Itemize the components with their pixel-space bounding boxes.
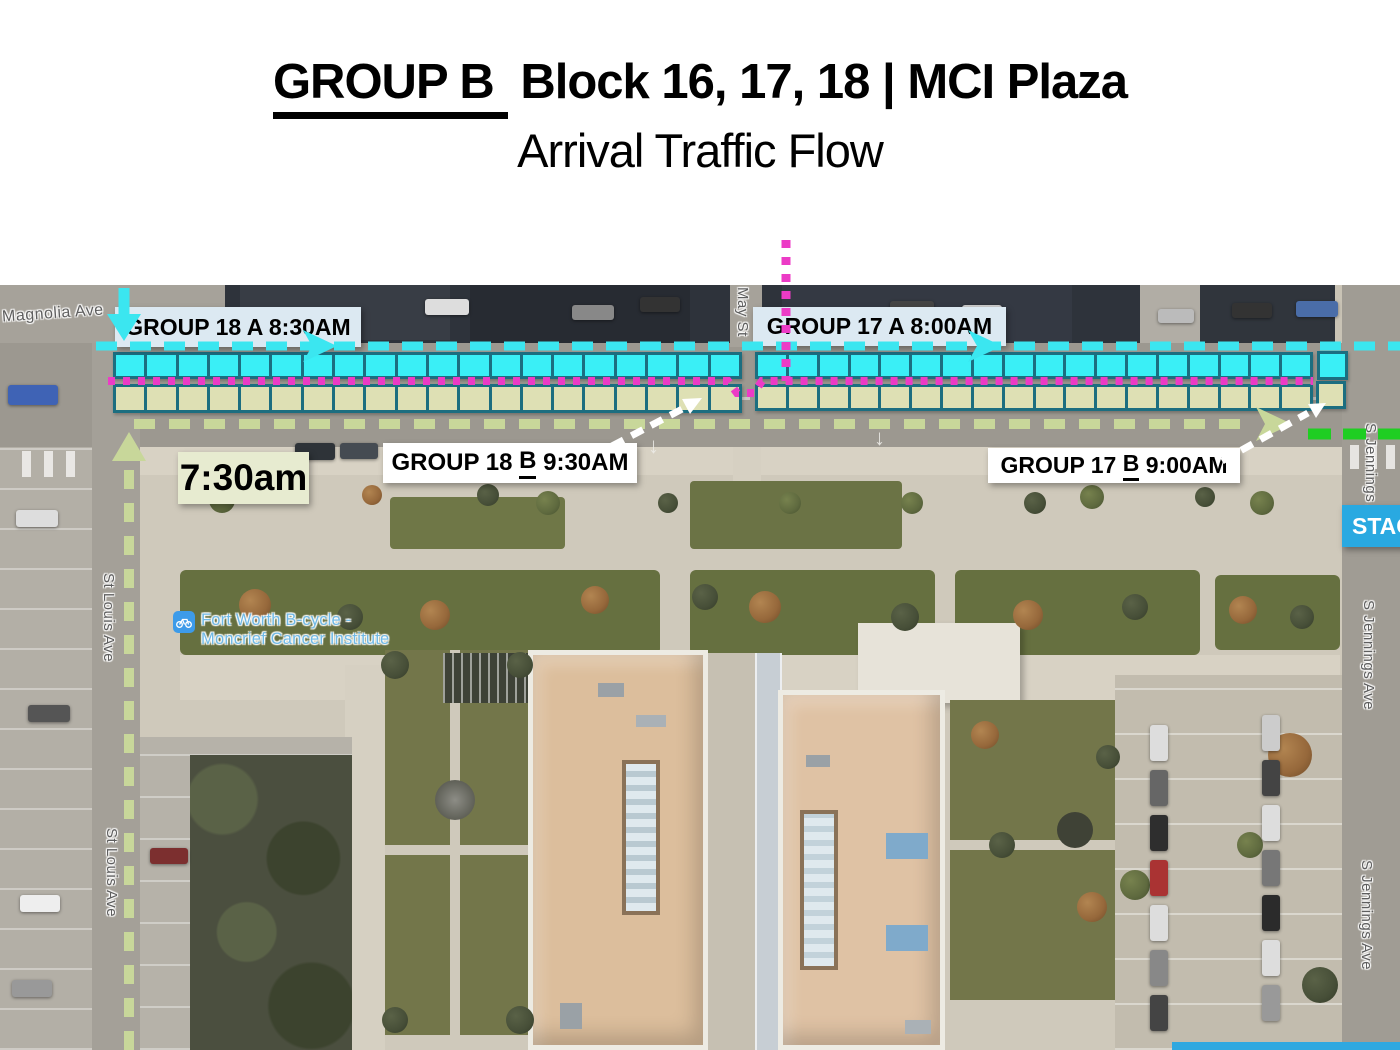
- car: [150, 848, 188, 864]
- staging-label: STAGING: [1352, 513, 1400, 540]
- parking-spot-beige: [366, 387, 394, 410]
- street-label-st-louis: St Louis Ave: [103, 828, 120, 917]
- tree: [1229, 596, 1257, 624]
- parking-spot-cyan: [366, 355, 394, 376]
- map-hvac: [806, 755, 830, 767]
- parking-spot-cyan: [1159, 355, 1187, 376]
- parking-spot-cyan: [648, 355, 676, 376]
- car: [1262, 985, 1280, 1021]
- tree: [1024, 492, 1046, 514]
- parking-spot-beige: [851, 387, 879, 408]
- map-garden-feature: [1057, 812, 1093, 848]
- slide: GROUP B Block 16, 17, 18 | MCI Plaza Arr…: [0, 0, 1400, 1050]
- car: [1232, 303, 1272, 318]
- parking-spot-beige: [1251, 387, 1279, 408]
- parking-spot-beige: [1097, 387, 1125, 408]
- callout-group-17b: GROUP 17 B 9:00AM: [988, 448, 1240, 483]
- car: [572, 305, 614, 320]
- parking-spot-beige: [304, 387, 332, 410]
- poi-line-2: Moncrief Cancer Institute: [201, 630, 389, 649]
- tree: [1120, 870, 1150, 900]
- parking-spot-cyan: [1036, 355, 1064, 376]
- parking-spot-beige: [116, 387, 144, 410]
- tree: [420, 600, 450, 630]
- parking-spot-beige: [648, 387, 676, 410]
- car: [1150, 725, 1168, 761]
- parking-row-block17-cyan: [755, 352, 1313, 379]
- car: [1262, 805, 1280, 841]
- slide-title: GROUP B Block 16, 17, 18 | MCI Plaza Arr…: [0, 52, 1400, 182]
- parking-spot-beige: [881, 387, 909, 408]
- parking-spot-beige: [585, 387, 613, 410]
- street-label-may: May St: [734, 287, 751, 337]
- parking-spot-cyan: [789, 355, 817, 376]
- tree: [891, 603, 919, 631]
- parking-spot-beige: [335, 387, 363, 410]
- parking-spot-cyan: [585, 355, 613, 376]
- parking-spot-cyan: [492, 355, 520, 376]
- parking-spot-cyan: [1221, 355, 1249, 376]
- tree: [362, 485, 382, 505]
- parking-spot-cyan: [179, 355, 207, 376]
- street-label-jennings: S Jennings Ave: [1360, 600, 1377, 710]
- callout-group-18b-prefix: GROUP 18: [392, 449, 520, 477]
- crosswalk-stripe: [44, 451, 53, 477]
- parking-spot-cyan: [1066, 355, 1094, 376]
- title-line-1: GROUP B Block 16, 17, 18 | MCI Plaza: [0, 52, 1400, 112]
- tree: [581, 586, 609, 614]
- car: [1150, 815, 1168, 851]
- car: [1150, 950, 1168, 986]
- parking-spot-beige: [679, 387, 707, 410]
- parking-spot-beige: [398, 387, 426, 410]
- map-hvac: [636, 715, 666, 727]
- tree: [779, 492, 801, 514]
- callout-group-17b-underlined: B: [1123, 450, 1140, 481]
- tree: [1250, 491, 1274, 515]
- parking-spot-cyan: [304, 355, 332, 376]
- callout-group-17a: GROUP 17 A 8:00AM: [753, 307, 1006, 346]
- tree: [477, 484, 499, 506]
- map-tree-row: [190, 755, 352, 1050]
- parking-row-block17-beige: [755, 384, 1313, 411]
- parking-spot-beige: [1319, 384, 1343, 406]
- parking-spot-cyan: [147, 355, 175, 376]
- tree: [658, 493, 678, 513]
- parking-spot-beige: [554, 387, 582, 410]
- arrival-time-label: 7:30am: [180, 457, 308, 499]
- tree: [1013, 600, 1043, 630]
- tree: [1077, 892, 1107, 922]
- callout-group-17a-label: GROUP 17 A 8:00AM: [767, 313, 992, 340]
- parking-spot-beige: [429, 387, 457, 410]
- map-skylight: [622, 760, 660, 915]
- parking-spot-beige: [1159, 387, 1187, 408]
- parking-spot-cyan: [1097, 355, 1125, 376]
- car: [1150, 770, 1168, 806]
- tree: [1302, 967, 1338, 1003]
- map-hvac: [598, 683, 624, 697]
- poi-bcycle-text: Fort Worth B-cycle - Moncrief Cancer Ins…: [201, 611, 389, 649]
- parking-spot-cyan: [272, 355, 300, 376]
- title-line-2: Arrival Traffic Flow: [0, 120, 1400, 182]
- parking-spot-beige: [460, 387, 488, 410]
- parking-spot-beige: [789, 387, 817, 408]
- callout-staging: STAGING: [1342, 505, 1400, 547]
- crosswalk-stripe: [22, 451, 31, 477]
- lane-arrow-icon: ↓: [874, 425, 885, 451]
- parking-spot-beige: [1128, 387, 1156, 408]
- map-entrance-walk: [708, 653, 755, 1050]
- parking-spot-beige: [1036, 387, 1064, 408]
- parking-spot-cyan: [881, 355, 909, 376]
- car: [8, 385, 58, 405]
- car: [425, 299, 469, 315]
- parking-spot-beige: [179, 387, 207, 410]
- parking-spot-beige: [1221, 387, 1249, 408]
- car: [1150, 905, 1168, 941]
- map-building-tower-1: [528, 650, 708, 1050]
- parking-spot-cyan: [241, 355, 269, 376]
- parking-spot-cyan: [210, 355, 238, 376]
- car: [1262, 760, 1280, 796]
- parking-spot-cyan: [1251, 355, 1279, 376]
- parking-row-block18-beige: [113, 384, 742, 413]
- parking-spot-beige: [912, 387, 940, 408]
- car: [1262, 850, 1280, 886]
- tree: [901, 492, 923, 514]
- car: [16, 510, 58, 527]
- parking-spot-cyan: [617, 355, 645, 376]
- parking-spot-cyan: [116, 355, 144, 376]
- car: [28, 705, 70, 722]
- parking-spot-cyan: [523, 355, 551, 376]
- parking-spot-cyan: [679, 355, 707, 376]
- callout-group-17b-prefix: GROUP 17: [1000, 452, 1122, 479]
- callout-group-18b-suffix: 9:30AM: [536, 449, 628, 477]
- car: [640, 297, 680, 312]
- map-hvac: [905, 1020, 931, 1034]
- poi-bcycle: Fort Worth B-cycle - Moncrief Cancer Ins…: [173, 611, 389, 649]
- tree: [971, 721, 999, 749]
- parking-spot-beige: [943, 387, 971, 408]
- parking-spot-beige: [617, 387, 645, 410]
- callout-arrival-time: 7:30am: [178, 452, 309, 504]
- parking-spot-cyan: [398, 355, 426, 376]
- callout-group-18a-label: GROUP 18 A 8:30AM: [125, 314, 350, 341]
- parking-spot-cyan: [974, 355, 1002, 376]
- lane-arrow-icon: ↓: [648, 433, 659, 459]
- map-courtyard-path: [450, 650, 460, 1035]
- parking-spot-cyan: [429, 355, 457, 376]
- parking-spot-beige: [492, 387, 520, 410]
- car: [1262, 940, 1280, 976]
- callout-group-17b-suffix: 9:00AM: [1139, 452, 1227, 479]
- parking-spot-offset-cyan: [1317, 351, 1348, 380]
- parking-spot-beige: [272, 387, 300, 410]
- tree: [536, 491, 560, 515]
- car: [1150, 995, 1168, 1031]
- title-group-b: GROUP B: [273, 55, 508, 119]
- map-hvac: [560, 1003, 582, 1029]
- title-rest: Block 16, 17, 18 | MCI Plaza: [508, 55, 1127, 109]
- street-label-st-louis: St Louis Ave: [100, 573, 117, 662]
- car: [1158, 309, 1194, 323]
- map-planter: [690, 481, 902, 549]
- parking-spot-offset-beige: [1316, 381, 1346, 409]
- parking-spot-beige: [820, 387, 848, 408]
- map-skylight: [800, 810, 838, 970]
- bicycle-icon: [173, 611, 195, 633]
- tree: [989, 832, 1015, 858]
- parking-spot-cyan: [758, 355, 786, 376]
- tree: [1237, 832, 1263, 858]
- parking-spot-beige: [523, 387, 551, 410]
- poi-line-1: Fort Worth B-cycle -: [201, 611, 389, 630]
- tree: [1080, 485, 1104, 509]
- tree: [692, 584, 718, 610]
- parking-spot-beige: [241, 387, 269, 410]
- car: [20, 895, 60, 912]
- tree: [381, 651, 409, 679]
- callout-group-18b: GROUP 18 B 9:30AM: [383, 443, 637, 483]
- parking-spot-cyan: [1128, 355, 1156, 376]
- map-blue-strip: [1172, 1042, 1400, 1050]
- crosswalk-stripe: [66, 451, 75, 477]
- parking-spot-cyan: [943, 355, 971, 376]
- car: [12, 980, 52, 997]
- parking-row-block18-cyan: [113, 352, 742, 379]
- parking-spot-cyan: [1282, 355, 1310, 376]
- parking-spot-cyan: [820, 355, 848, 376]
- parking-spot-cyan: [912, 355, 940, 376]
- parking-spot-cyan: [335, 355, 363, 376]
- parking-spot-beige: [210, 387, 238, 410]
- parking-spot-cyan: [554, 355, 582, 376]
- satellite-map: Magnolia Ave May St St Louis Ave St Loui…: [0, 285, 1400, 1050]
- car: [340, 443, 378, 459]
- parking-spot-beige: [147, 387, 175, 410]
- parking-spot-beige: [1005, 387, 1033, 408]
- crosswalk-stripe: [1386, 445, 1395, 469]
- parking-spot-cyan: [711, 355, 739, 376]
- parking-spot-beige: [1190, 387, 1218, 408]
- map-road-st-louis: [92, 343, 140, 1050]
- map-glass-roof: [886, 833, 928, 859]
- map-garden-path: [950, 840, 1115, 850]
- tree: [1290, 605, 1314, 629]
- parking-spot-cyan: [851, 355, 879, 376]
- callout-group-18b-underlined: B: [519, 447, 536, 479]
- parking-spot-beige: [758, 387, 786, 408]
- parking-spot-cyan: [1190, 355, 1218, 376]
- car: [1262, 895, 1280, 931]
- map-fountain: [435, 780, 475, 820]
- car: [1150, 860, 1168, 896]
- tree: [506, 1006, 534, 1034]
- parking-spot-beige: [1282, 387, 1310, 408]
- parking-spot-beige: [711, 387, 739, 410]
- parking-spot-beige: [974, 387, 1002, 408]
- tree: [1096, 745, 1120, 769]
- tree: [1195, 487, 1215, 507]
- crosswalk-stripe: [1350, 445, 1359, 469]
- parking-spot-cyan: [460, 355, 488, 376]
- parking-spot-cyan: [1005, 355, 1033, 376]
- parking-spot-cyan: [1320, 354, 1345, 377]
- car: [1262, 715, 1280, 751]
- tree: [507, 652, 533, 678]
- map-glass-roof: [886, 925, 928, 951]
- tree: [382, 1007, 408, 1033]
- callout-group-18a: GROUP 18 A 8:30AM: [115, 307, 361, 347]
- tree: [1122, 594, 1148, 620]
- parking-spot-beige: [1066, 387, 1094, 408]
- tree: [749, 591, 781, 623]
- street-label-jennings: S Jennings Ave: [1358, 860, 1375, 970]
- map-left-parking-lot: [0, 447, 92, 1050]
- car: [1296, 301, 1338, 317]
